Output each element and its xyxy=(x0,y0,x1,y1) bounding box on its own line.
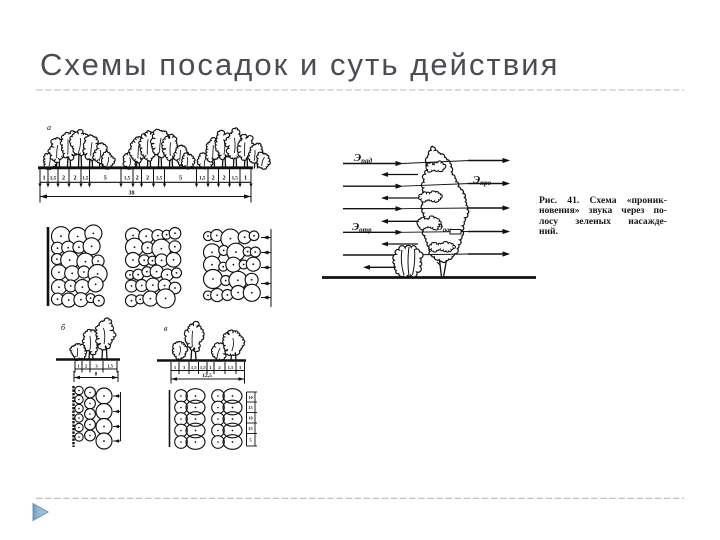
svg-text:Эпог: Эпог xyxy=(437,222,452,234)
svg-text:2: 2 xyxy=(212,175,215,182)
svg-text:3: 3 xyxy=(95,364,98,369)
svg-text:2: 2 xyxy=(73,175,76,182)
svg-text:10: 10 xyxy=(248,395,253,400)
svg-text:15: 15 xyxy=(248,405,253,410)
svg-text:1,5: 1,5 xyxy=(82,177,89,182)
svg-text:8: 8 xyxy=(95,372,98,378)
svg-text:б: б xyxy=(61,323,66,332)
svg-text:2: 2 xyxy=(222,175,225,182)
svg-text:1: 1 xyxy=(244,175,247,182)
svg-text:a: a xyxy=(47,123,51,132)
svg-text:1: 1 xyxy=(209,365,212,370)
svg-text:1,5: 1,5 xyxy=(107,364,113,369)
svg-text:1: 1 xyxy=(42,175,45,182)
svg-text:2: 2 xyxy=(218,365,221,370)
svg-text:5: 5 xyxy=(179,175,182,182)
svg-text:1,5: 1,5 xyxy=(156,177,163,182)
svg-text:1,5: 1,5 xyxy=(50,177,57,182)
svg-text:1,5: 1,5 xyxy=(124,177,131,182)
svg-text:1,5: 1,5 xyxy=(199,177,206,182)
svg-text:1: 1 xyxy=(174,365,177,370)
svg-text:2: 2 xyxy=(146,175,149,182)
svg-text:2: 2 xyxy=(62,175,65,182)
svg-text:2: 2 xyxy=(136,175,139,182)
svg-text:Эпад: Эпад xyxy=(354,152,373,165)
svg-text:3: 3 xyxy=(183,365,186,370)
svg-text:1: 1 xyxy=(77,364,80,369)
svg-text:10: 10 xyxy=(248,416,253,421)
svg-text:1,5: 1,5 xyxy=(191,365,197,370)
svg-text:12,5: 12,5 xyxy=(202,373,212,379)
svg-text:Эпро: Эпро xyxy=(473,174,492,187)
svg-text:5: 5 xyxy=(104,175,107,182)
svg-text:1,5: 1,5 xyxy=(228,365,234,370)
svg-text:1,5: 1,5 xyxy=(232,177,239,182)
svg-text:15: 15 xyxy=(248,426,253,431)
svg-text:1,5: 1,5 xyxy=(200,365,206,370)
svg-text:Эотр: Эотр xyxy=(352,221,372,234)
svg-text:в: в xyxy=(164,324,168,333)
svg-text:1: 1 xyxy=(239,365,242,370)
svg-text:38: 38 xyxy=(129,190,135,196)
svg-text:2: 2 xyxy=(85,364,88,369)
svg-text:5: 5 xyxy=(249,438,252,443)
